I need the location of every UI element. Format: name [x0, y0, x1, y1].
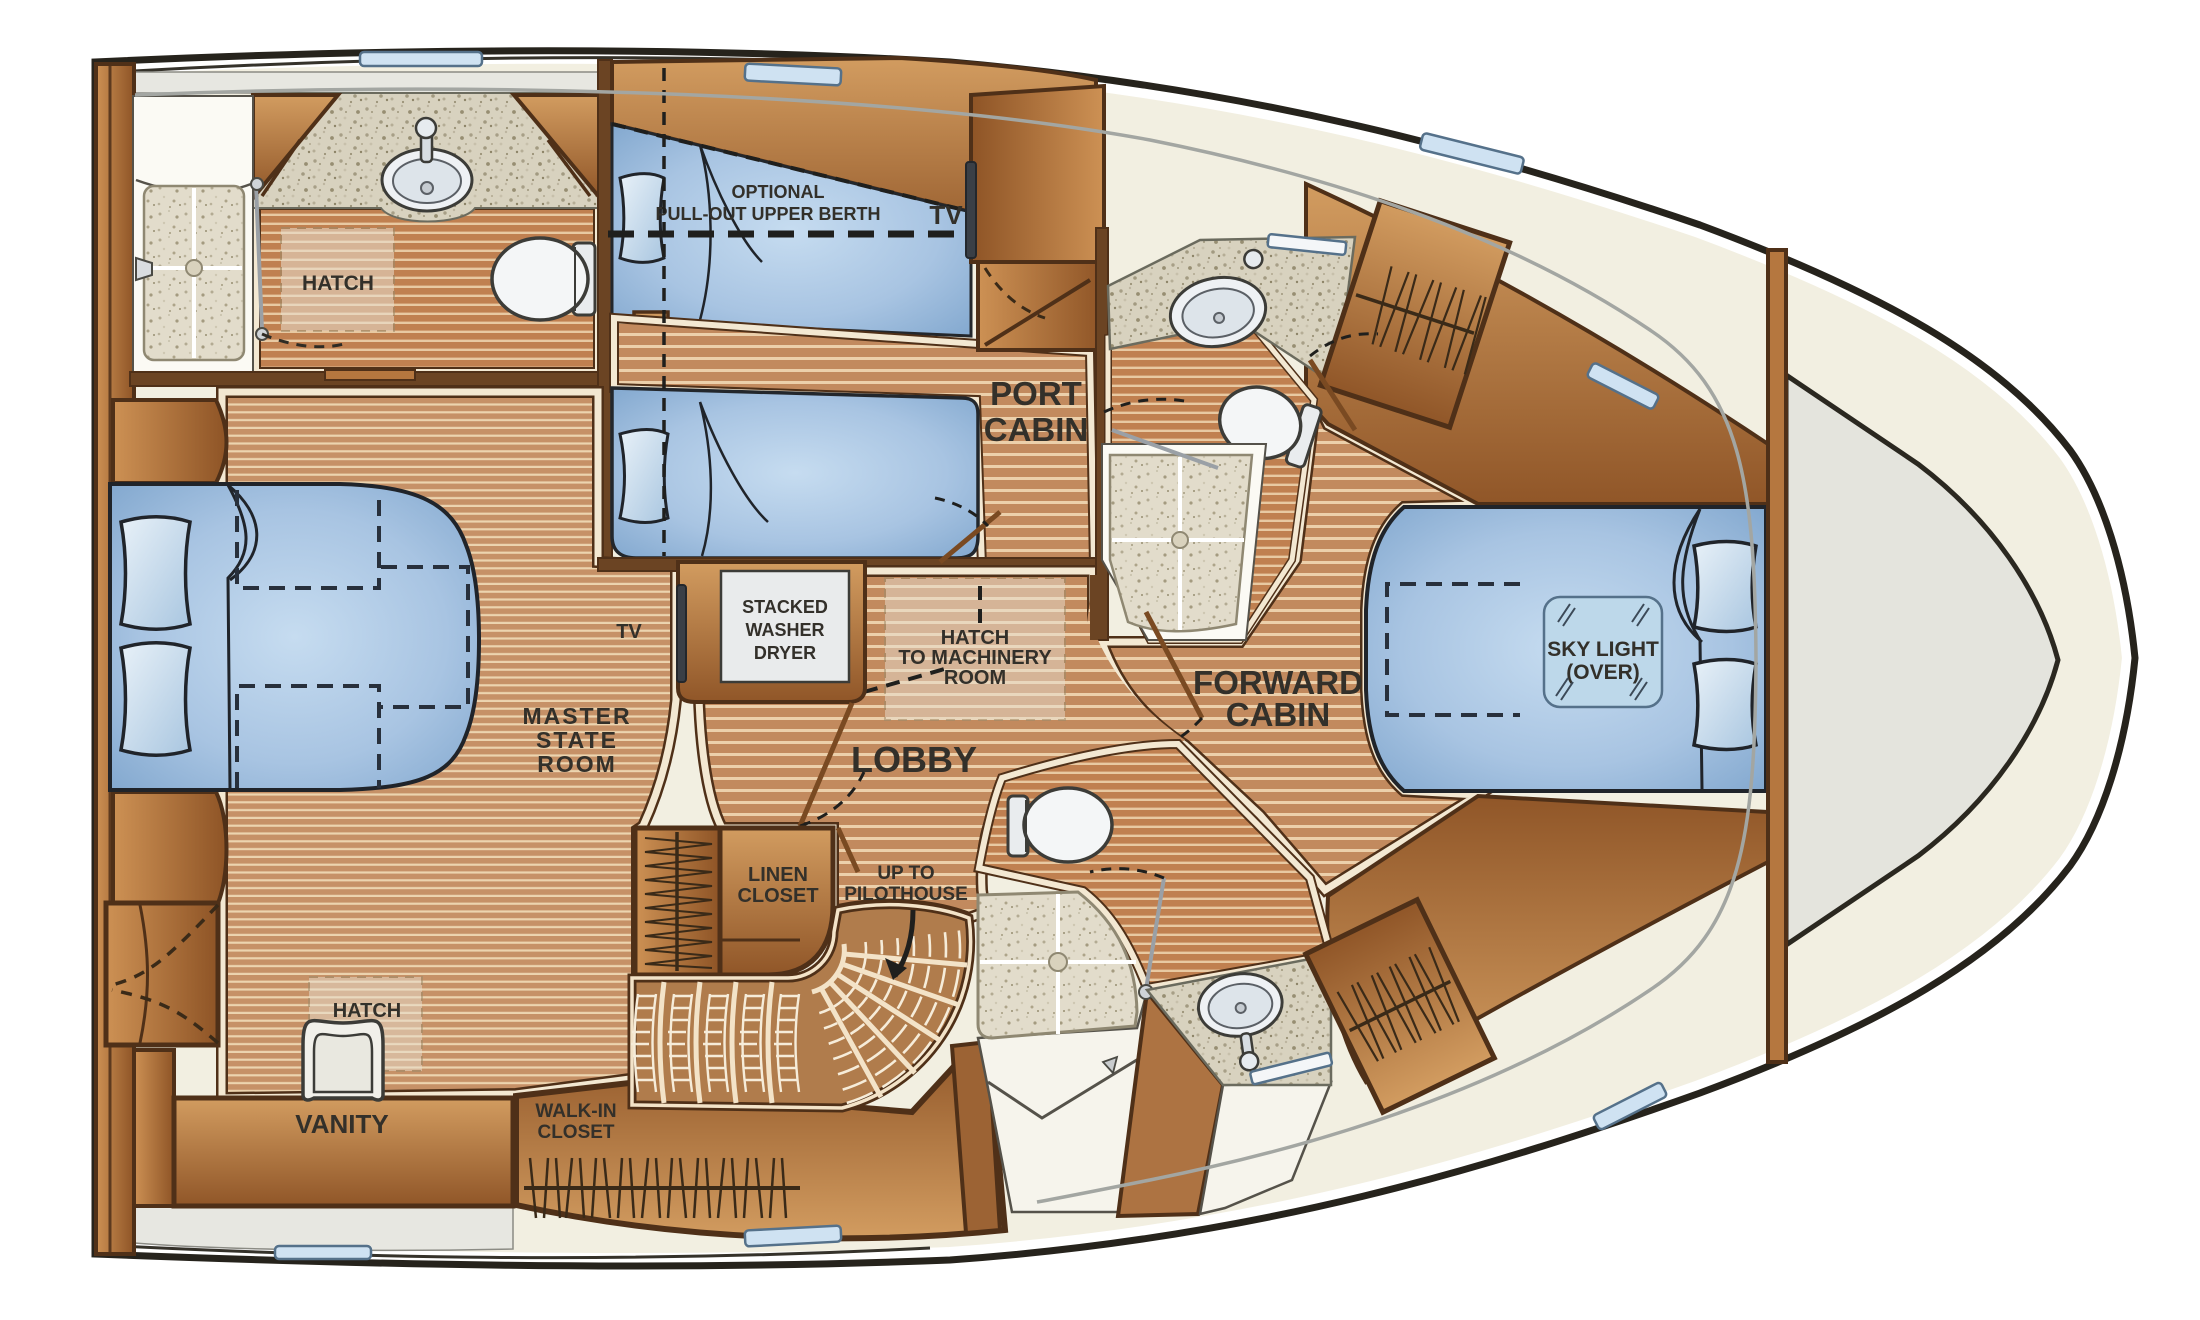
svg-text:(OVER): (OVER) — [1566, 661, 1640, 684]
svg-text:PILOTHOUSE: PILOTHOUSE — [844, 884, 968, 905]
svg-text:CABIN: CABIN — [984, 411, 1089, 448]
svg-text:TO MACHINERY: TO MACHINERY — [898, 647, 1052, 669]
svg-text:HATCH: HATCH — [333, 1000, 402, 1022]
svg-text:UP TO: UP TO — [877, 863, 934, 884]
svg-text:SKY LIGHT: SKY LIGHT — [1547, 638, 1659, 661]
svg-text:OPTIONAL: OPTIONAL — [732, 182, 825, 202]
svg-text:PORT: PORT — [990, 375, 1082, 412]
svg-text:DRYER: DRYER — [754, 643, 816, 663]
svg-text:STACKED: STACKED — [742, 597, 828, 617]
svg-text:CLOSET: CLOSET — [537, 1122, 614, 1143]
svg-text:ROOM: ROOM — [944, 667, 1006, 689]
svg-text:HATCH: HATCH — [941, 627, 1010, 649]
svg-text:LOBBY: LOBBY — [851, 739, 977, 780]
svg-text:STATE: STATE — [536, 727, 618, 753]
svg-text:PULL-OUT UPPER BERTH: PULL-OUT UPPER BERTH — [656, 204, 881, 224]
svg-text:WASHER: WASHER — [745, 620, 824, 640]
svg-text:ROOM: ROOM — [537, 751, 617, 777]
svg-text:HATCH: HATCH — [302, 272, 374, 295]
svg-text:VANITY: VANITY — [295, 1109, 388, 1139]
svg-text:CABIN: CABIN — [1226, 696, 1331, 733]
svg-text:WALK-IN: WALK-IN — [535, 1101, 616, 1122]
svg-text:LINEN: LINEN — [748, 864, 808, 886]
svg-text:TV: TV — [929, 200, 963, 230]
svg-text:MASTER: MASTER — [522, 703, 631, 729]
svg-text:CLOSET: CLOSET — [737, 885, 818, 907]
svg-text:TV: TV — [616, 621, 642, 643]
